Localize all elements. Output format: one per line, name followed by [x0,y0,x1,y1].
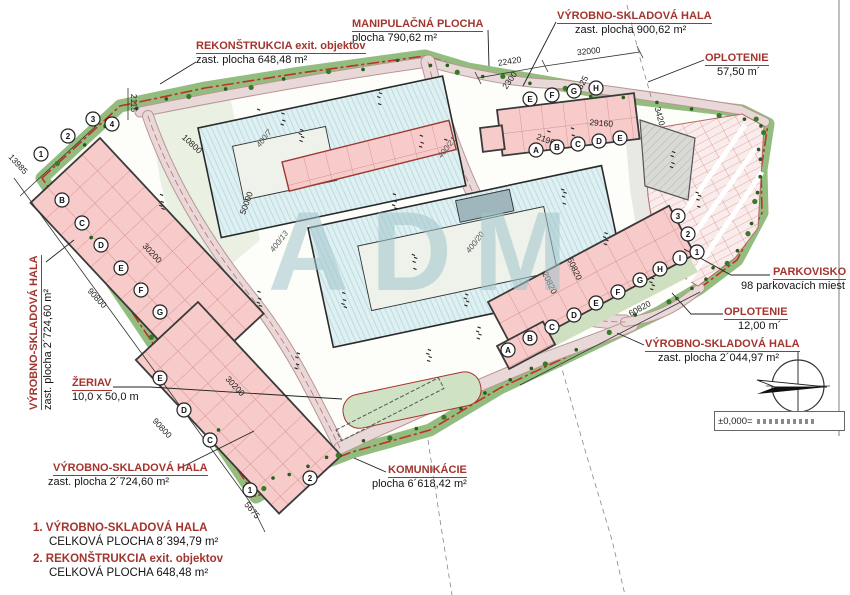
tree-dot [224,87,228,91]
tree-dot [429,64,433,68]
callout-sub: 57,50 m´ [717,66,769,79]
grid-bubble: B [523,331,537,345]
svg-text:B: B [554,143,560,152]
callout-hala2044: VÝROBNO-SKLADOVÁ HALA zast. plocha 2´044… [645,338,800,365]
grid-bubble: 1 [34,147,48,161]
svg-text:G: G [637,276,643,285]
grid-bubble: 4 [105,117,119,131]
svg-text:F: F [616,288,621,297]
grid-bubble: H [653,262,667,276]
tree-dot [666,299,671,304]
tree-dot [725,261,730,266]
tree-dot [217,428,221,432]
callout-hala900: VÝROBNO-SKLADOVÁ HALA zast. plocha 900,6… [557,10,712,37]
svg-text:3: 3 [91,115,96,124]
callout-title: VÝROBNO-SKLADOVÁ HALA [645,338,800,352]
tree-dot [483,391,487,395]
callout-title: PARKOVISKO [773,266,846,280]
grid-bubble: D [177,403,191,417]
tree-dot [589,95,593,99]
svg-text:I: I [679,254,681,263]
tree-dot [759,157,763,161]
tree-dot [528,82,532,86]
svg-text:B: B [59,196,65,205]
illegible-text [757,419,815,424]
grid-bubble: B [55,193,69,207]
svg-text:G: G [571,87,577,96]
svg-text:H: H [593,84,599,93]
tree-dot [261,486,266,491]
callout-komunikacie: KOMUNIKÁCIE plocha 6´618,42 m² [388,464,467,491]
tree-dot [607,330,612,335]
tree-dot [55,161,60,166]
tree-dot [704,277,708,281]
grid-bubble: F [545,88,559,102]
grid-bubble: D [94,238,108,252]
tree-dot [287,473,291,477]
callout-title: KOMUNIKÁCIE [388,464,467,478]
tree-dot [757,148,761,152]
tree-dot [326,69,331,74]
callout-hala2724-bottom: VÝROBNO-SKLADOVÁ HALA zast. plocha 2´724… [53,462,208,489]
svg-text:E: E [593,299,599,308]
callout-sub: 12,00 m´ [738,320,788,333]
legend-sub: CELKOVÁ PLOCHA 648,48 m² [49,566,223,580]
grid-bubble: 3 [671,209,685,223]
legend-num: 1. [33,522,43,534]
callout-title: VÝROBNO-SKLADOVÁ HALA [53,462,208,476]
callout-sub: zast. plocha 900,62 m² [575,24,712,37]
grid-bubble: G [633,273,647,287]
grid-bubble: E [613,131,627,145]
tree-dot [711,266,715,270]
tree-dot [446,64,450,68]
callout-title: VÝROBNO-SKLADOVÁ HALA [28,255,42,410]
tree-dot [387,436,392,441]
callout-sub: 10,0 x 50,0 m [72,391,139,404]
tree-dot [690,287,694,291]
svg-text:1: 1 [695,248,700,257]
svg-text:F: F [550,91,555,100]
site-plan-drawing: 1398521152242032000962523002916021960342… [0,0,850,595]
tree-dot [675,297,679,301]
callout-title: REKONŠTRUKCIA exit. objektov [196,40,366,54]
tree-dot [83,143,87,147]
grid-bubble: G [153,305,167,319]
dimension-label: 32000 [576,45,601,57]
callout-title: MANIPULAČNÁ PLOCHA [352,18,483,32]
dimension-label: 5675 [242,500,262,521]
callout-rekonstrukcia: REKONŠTRUKCIA exit. objektov zast. ploch… [196,40,366,67]
grid-bubble: 2 [61,129,75,143]
svg-text:2: 2 [308,474,313,483]
legend-title: VÝROBNO-SKLADOVÁ HALA [46,522,208,534]
grid-bubble: E [114,261,128,275]
svg-text:G: G [157,308,163,317]
tree-dot [621,96,625,100]
svg-text:D: D [596,137,602,146]
legend-title: REKONŠTRUKCIA exit. objektov [46,553,223,565]
tree-dot [306,464,310,468]
tree-dot [750,222,754,226]
tree-dot [743,117,747,121]
svg-text:2: 2 [66,132,71,141]
callout-sub: zast. plocha 2´724,60 m² [48,476,208,489]
tree-dot [574,348,578,352]
dimension-label: 2115 [129,94,139,113]
tree-dot [717,113,722,118]
grid-bubble: H [589,81,603,95]
callout-oplotenie57: OPLOTENIE 57,50 m´ [705,52,769,79]
tree-dot [655,101,659,105]
callout-title: OPLOTENIE [724,306,788,320]
tree-dot [455,70,460,75]
dimension-label: 90800 [85,286,109,310]
grid-bubble: 1 [243,483,257,497]
tree-dot [736,249,740,253]
legend-item: 1. VÝROBNO-SKLADOVÁ HALA CELKOVÁ PLOCHA … [33,521,223,549]
site-plan-sheet: 1398521152242032000962523002916021960342… [0,0,850,595]
datum-text: ±0,000= [718,416,753,427]
grid-bubble: F [134,283,148,297]
callout-oplotenie12: OPLOTENIE 12,00 m´ [724,306,788,333]
svg-text:4: 4 [110,120,115,129]
svg-text:1: 1 [248,486,253,495]
svg-text:E: E [118,264,124,273]
grid-bubble: 2 [681,227,695,241]
tree-dot [396,59,400,63]
grid-bubble: 1 [690,245,704,259]
svg-text:F: F [139,286,144,295]
tree-dot [271,476,275,480]
legend-sub: CELKOVÁ PLOCHA 8´394,79 m² [49,535,223,549]
callout-title: ŽERIAV [72,377,112,391]
grid-bubble: B [550,140,564,154]
callout-hala2724-left: VÝROBNO-SKLADOVÁ HALA zast. plocha 2´724… [28,255,55,410]
callout-sub: plocha 6´618,42 m² [372,478,467,491]
callout-sub: plocha 790,62 m² [352,32,483,45]
tree-dot [249,85,254,90]
svg-text:3: 3 [676,212,681,221]
svg-text:H: H [657,265,663,274]
callout-manipulacna: MANIPULAČNÁ PLOCHA plocha 790,62 m² [352,18,483,45]
grid-bubble: A [529,143,543,157]
legend-item: 2. REKONŠTRUKCIA exit. objektov CELKOVÁ … [33,552,223,580]
dimension-label: 29160 [589,117,614,129]
grid-bubble: F [611,285,625,299]
dimension-label: 13985 [6,152,30,176]
grid-bubble: C [571,137,585,151]
svg-text:1: 1 [39,150,44,159]
tree-dot [759,124,763,128]
svg-text:E: E [617,134,623,143]
datum-box: ±0,000= [714,411,845,431]
callout-zeriav: ŽERIAV 10,0 x 50,0 m [72,377,139,404]
callout-sub: zast. plocha 648,48 m² [196,54,366,67]
dimension-label: 22420 [497,54,522,68]
tree-dot [756,191,760,195]
grid-bubble: E [523,92,537,106]
svg-text:2: 2 [686,230,691,239]
tree-dot [362,439,366,443]
tree-dot [325,455,329,459]
grid-bubble: C [203,433,217,447]
grid-bubble: E [589,296,603,310]
grid-bubble: D [567,308,581,322]
legend-num: 2. [33,553,43,565]
legend: 1. VÝROBNO-SKLADOVÁ HALA CELKOVÁ PLOCHA … [33,521,223,583]
svg-text:C: C [549,323,555,332]
tree-dot [758,175,762,179]
tree-dot [690,107,694,111]
tree-dot [165,97,169,101]
callout-title: VÝROBNO-SKLADOVÁ HALA [557,10,712,24]
dimension-label: 90800 [150,416,174,440]
callout-sub: zast. plocha 2´724,60 m² [42,255,55,410]
tree-dot [752,199,757,204]
grid-bubble: I [673,251,687,265]
callout-sub: zast. plocha 2´044,97 m² [658,352,800,365]
grid-bubble: C [545,320,559,334]
svg-text:B: B [527,334,533,343]
grid-bubble: E [153,371,167,385]
svg-text:D: D [571,311,577,320]
callout-sub: 98 parkovacích miest [741,280,846,293]
svg-text:D: D [181,406,187,415]
grid-bubble: G [567,84,581,98]
tree-dot [761,130,766,135]
svg-text:C: C [575,140,581,149]
tree-dot [89,236,93,240]
grid-bubble: C [75,216,89,230]
tree-dot [336,453,341,458]
callout-title: OPLOTENIE [705,52,769,66]
tree-dot [441,415,446,420]
tree-dot [754,116,759,121]
svg-text:C: C [79,219,85,228]
tree-dot [459,407,463,411]
svg-text:A: A [505,346,511,355]
tree-dot [543,361,548,366]
tree-dot [186,94,191,99]
grid-bubble: D [592,134,606,148]
svg-text:D: D [98,241,104,250]
tree-dot [282,77,286,81]
tree-dot [149,335,154,340]
hall-northeast-annex [480,125,505,152]
tree-dot [530,367,534,371]
tree-dot [509,378,513,382]
grid-bubble: 2 [303,471,317,485]
tree-dot [481,75,485,79]
tree-dot [361,68,365,72]
grid-bubble: A [501,343,515,357]
svg-text:A: A [533,146,539,155]
callout-parkovisko: PARKOVISKO 98 parkovacích miest [773,266,846,293]
svg-text:E: E [157,374,163,383]
tree-dot [745,231,750,236]
grid-bubble: 3 [86,112,100,126]
svg-text:C: C [207,436,213,445]
tree-dot [415,427,419,431]
svg-text:E: E [527,95,533,104]
